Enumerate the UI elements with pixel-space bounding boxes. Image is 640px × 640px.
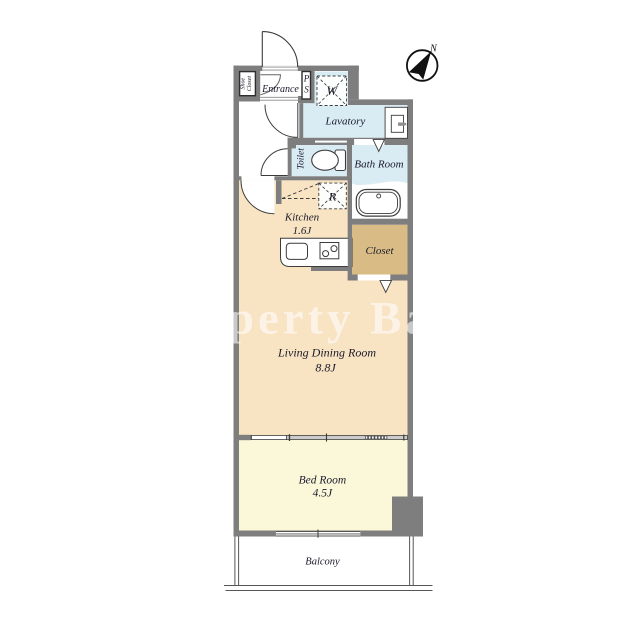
svg-text:Bath Room: Bath Room — [354, 159, 403, 171]
svg-text:Shoe: Shoe — [241, 77, 247, 89]
svg-text:S: S — [304, 85, 309, 95]
svg-text:N: N — [429, 44, 438, 55]
svg-text:R: R — [328, 190, 337, 204]
svg-text:Bed Room: Bed Room — [299, 474, 347, 486]
svg-text:Closet: Closet — [247, 76, 253, 92]
svg-text:Lavatory: Lavatory — [325, 115, 366, 127]
svg-text:P: P — [303, 74, 310, 84]
svg-text:Entrance: Entrance — [261, 84, 299, 95]
svg-text:Toilet: Toilet — [297, 148, 307, 170]
svg-text:Balcony: Balcony — [305, 557, 340, 568]
svg-text:4.5J: 4.5J — [313, 487, 333, 499]
svg-text:1.6J: 1.6J — [293, 225, 313, 237]
svg-text:Living Dining Room: Living Dining Room — [277, 346, 376, 360]
svg-text:Closet: Closet — [365, 245, 394, 257]
svg-text:Kitchen: Kitchen — [284, 211, 320, 223]
svg-text:Property Bank: Property Bank — [144, 293, 493, 345]
svg-text:W: W — [326, 83, 338, 98]
svg-text:8.8J: 8.8J — [315, 361, 336, 375]
